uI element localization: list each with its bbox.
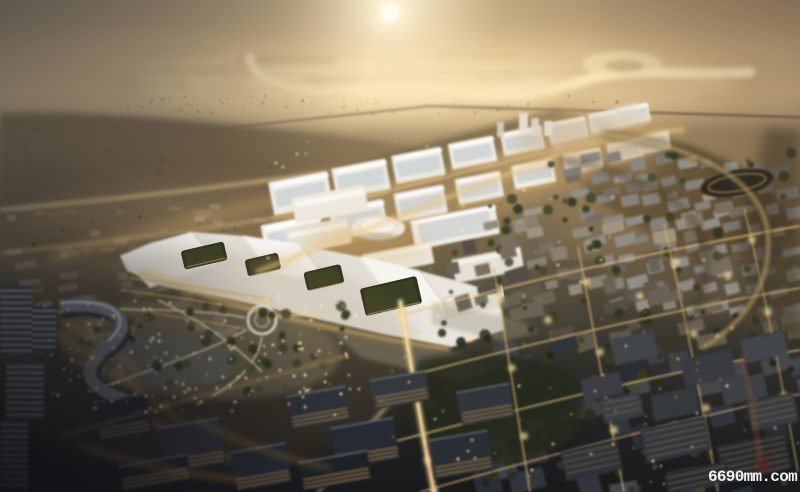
svg-text:6690mm.com: 6690mm.com [708,468,798,486]
